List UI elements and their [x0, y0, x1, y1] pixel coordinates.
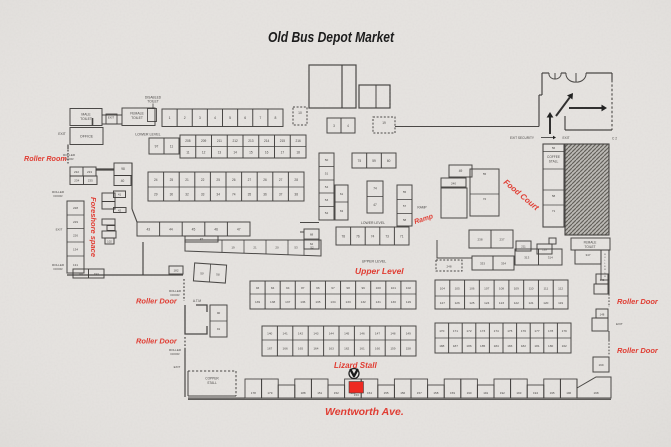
svg-text:59: 59 [200, 271, 204, 275]
svg-text:152: 152 [334, 391, 339, 395]
svg-text:5: 5 [229, 116, 231, 120]
svg-text:44: 44 [169, 227, 173, 231]
svg-text:138: 138 [270, 300, 275, 304]
svg-text:105: 105 [455, 286, 460, 290]
svg-text:162: 162 [562, 344, 567, 348]
svg-text:OFFICE: OFFICE [80, 135, 94, 139]
svg-text:178: 178 [251, 391, 256, 395]
svg-text:TOILET: TOILET [80, 117, 92, 121]
svg-text:171: 171 [453, 329, 458, 333]
svg-text:125: 125 [469, 301, 474, 305]
svg-text:123: 123 [499, 301, 504, 305]
svg-text:159: 159 [450, 391, 455, 395]
svg-text:131: 131 [376, 300, 381, 304]
svg-text:21: 21 [253, 246, 257, 250]
svg-text:STALL: STALL [207, 381, 217, 385]
svg-text:173: 173 [480, 329, 485, 333]
svg-text:154: 154 [367, 391, 372, 395]
svg-text:76: 76 [356, 234, 360, 238]
svg-text:4: 4 [214, 116, 216, 120]
svg-text:182: 182 [173, 269, 178, 273]
svg-text:22: 22 [201, 178, 205, 182]
svg-text:159: 159 [390, 346, 395, 350]
svg-text:47: 47 [237, 227, 241, 231]
svg-text:190: 190 [467, 391, 472, 395]
svg-text:87: 87 [301, 286, 305, 290]
svg-text:164: 164 [313, 346, 318, 350]
svg-text:52: 52 [325, 211, 329, 215]
svg-text:101: 101 [391, 286, 396, 290]
svg-text:135: 135 [315, 300, 320, 304]
svg-text:15: 15 [249, 151, 253, 155]
svg-text:216: 216 [295, 139, 301, 143]
svg-text:182: 182 [521, 344, 526, 348]
svg-text:74: 74 [232, 192, 236, 196]
svg-text:146: 146 [600, 278, 605, 282]
svg-text:198: 198 [593, 391, 598, 395]
svg-text:180: 180 [548, 344, 553, 348]
svg-text:149: 149 [406, 331, 411, 335]
svg-text:Upper Level: Upper Level [355, 266, 404, 276]
svg-text:188: 188 [439, 344, 444, 348]
svg-text:59: 59 [372, 159, 376, 163]
svg-text:13: 13 [218, 151, 222, 155]
svg-text:124: 124 [484, 301, 489, 305]
svg-text:8: 8 [274, 116, 276, 120]
svg-text:16: 16 [265, 151, 269, 155]
svg-text:73: 73 [385, 234, 389, 238]
svg-text:193: 193 [516, 391, 521, 395]
svg-text:LOWER LEVEL: LOWER LEVEL [361, 221, 385, 225]
svg-text:35: 35 [248, 192, 252, 196]
svg-text:213: 213 [248, 139, 254, 143]
svg-text:188: 188 [301, 391, 306, 395]
svg-text:74: 74 [373, 187, 377, 191]
svg-text:37: 37 [279, 192, 283, 196]
svg-text:30: 30 [170, 192, 174, 196]
svg-text:11: 11 [186, 151, 190, 155]
svg-text:110: 110 [529, 286, 534, 290]
svg-text:4: 4 [347, 124, 349, 128]
svg-text:25: 25 [216, 178, 220, 182]
svg-text:DOOR: DOOR [54, 194, 64, 198]
svg-text:42: 42 [118, 209, 122, 213]
svg-text:43: 43 [146, 227, 150, 231]
svg-text:38: 38 [294, 192, 298, 196]
svg-text:Roller Room: Roller Room [24, 154, 67, 163]
svg-text:Roller Door: Roller Door [136, 337, 178, 346]
svg-text:Roller Door: Roller Door [617, 297, 659, 306]
svg-text:192: 192 [500, 391, 505, 395]
svg-text:EXIT: EXIT [58, 132, 66, 136]
svg-text:12: 12 [202, 151, 206, 155]
svg-text:215: 215 [280, 139, 286, 143]
svg-text:46: 46 [214, 227, 218, 231]
svg-text:3: 3 [199, 116, 201, 120]
svg-text:TOILET: TOILET [147, 100, 158, 104]
svg-text:165: 165 [298, 346, 303, 350]
svg-text:160: 160 [375, 346, 380, 350]
svg-text:137: 137 [285, 300, 290, 304]
svg-text:EXIT: EXIT [56, 228, 63, 232]
svg-text:131: 131 [73, 263, 78, 267]
svg-text:158: 158 [406, 346, 411, 350]
svg-text:EXIT: EXIT [562, 136, 569, 140]
svg-text:209: 209 [201, 139, 207, 143]
svg-text:74: 74 [371, 234, 375, 238]
svg-text:226: 226 [73, 234, 78, 238]
svg-text:139: 139 [255, 300, 260, 304]
svg-text:COFFEE: COFFEE [547, 155, 560, 159]
svg-text:19: 19 [231, 246, 235, 250]
svg-text:176: 176 [521, 329, 526, 333]
svg-text:112: 112 [558, 286, 563, 290]
svg-text:20: 20 [275, 246, 279, 250]
svg-text:53: 53 [325, 198, 329, 202]
svg-text:313: 313 [524, 255, 529, 259]
svg-text:153: 153 [354, 393, 359, 397]
svg-text:109: 109 [514, 286, 519, 290]
svg-text:78: 78 [342, 234, 346, 238]
svg-text:Wentworth Ave.: Wentworth Ave. [325, 406, 404, 418]
svg-text:98: 98 [121, 167, 125, 171]
svg-text:228: 228 [73, 206, 78, 210]
svg-text:136: 136 [300, 300, 305, 304]
svg-text:175: 175 [507, 329, 512, 333]
svg-text:58: 58 [403, 218, 407, 222]
svg-text:195: 195 [550, 391, 555, 395]
svg-text:LOWER LEVEL: LOWER LEVEL [135, 133, 160, 137]
svg-text:151: 151 [317, 391, 322, 395]
svg-text:166: 166 [283, 346, 288, 350]
svg-text:178: 178 [548, 329, 553, 333]
svg-text:211: 211 [217, 139, 222, 143]
svg-text:61: 61 [340, 192, 344, 196]
svg-text:111: 111 [543, 286, 548, 290]
svg-text:185: 185 [480, 344, 485, 348]
svg-text:71: 71 [552, 209, 556, 213]
svg-text:29: 29 [154, 192, 158, 196]
svg-text:334: 334 [501, 261, 506, 265]
svg-text:27: 27 [248, 178, 252, 182]
svg-text:235: 235 [88, 179, 93, 183]
svg-text:134: 134 [330, 300, 335, 304]
svg-text:Old Bus Depot Market: Old Bus Depot Market [268, 30, 395, 46]
svg-text:Foreshore space: Foreshore space [89, 197, 98, 257]
svg-text:132: 132 [361, 300, 366, 304]
svg-text:36: 36 [263, 192, 267, 196]
svg-text:32: 32 [185, 192, 189, 196]
svg-text:EXIT: EXIT [616, 322, 623, 326]
svg-text:17: 17 [281, 151, 285, 155]
svg-text:51: 51 [325, 172, 329, 176]
svg-text:10: 10 [298, 111, 302, 115]
svg-text:47: 47 [373, 203, 377, 207]
svg-text:184: 184 [494, 344, 499, 348]
svg-text:314: 314 [548, 255, 553, 259]
svg-text:177: 177 [534, 329, 539, 333]
svg-text:97: 97 [331, 286, 335, 290]
svg-text:1: 1 [169, 116, 171, 120]
svg-text:211: 211 [521, 245, 526, 249]
svg-text:FEMALE: FEMALE [130, 112, 144, 116]
svg-text:57: 57 [403, 204, 407, 208]
svg-text:25: 25 [170, 178, 174, 182]
svg-text:62: 62 [310, 242, 314, 246]
svg-text:162: 162 [344, 346, 349, 350]
svg-text:144: 144 [329, 331, 334, 335]
svg-text:90: 90 [217, 311, 221, 315]
svg-text:27: 27 [279, 178, 283, 182]
svg-text:49: 49 [459, 169, 463, 173]
svg-text:53: 53 [294, 246, 298, 250]
svg-text:EXIT: EXIT [108, 116, 115, 120]
svg-text:24: 24 [154, 178, 158, 182]
svg-text:186: 186 [466, 344, 471, 348]
svg-text:98: 98 [346, 286, 350, 290]
svg-text:167: 167 [267, 346, 272, 350]
svg-text:TOILET: TOILET [584, 245, 595, 249]
svg-text:237: 237 [499, 237, 504, 241]
svg-text:EXIT SECURITY: EXIT SECURITY [510, 136, 535, 140]
svg-text:Lizard Stall: Lizard Stall [334, 361, 377, 370]
svg-text:A.T.M: A.T.M [193, 299, 201, 303]
svg-text:84: 84 [271, 286, 275, 290]
svg-text:33: 33 [201, 192, 205, 196]
svg-text:145: 145 [344, 331, 349, 335]
svg-text:148: 148 [390, 331, 395, 335]
svg-text:172: 172 [466, 329, 471, 333]
svg-text:179: 179 [267, 391, 272, 395]
svg-text:140: 140 [267, 331, 272, 335]
svg-text:133: 133 [346, 300, 351, 304]
svg-text:120: 120 [543, 301, 548, 305]
svg-text:147: 147 [375, 331, 380, 335]
svg-text:6: 6 [244, 116, 246, 120]
svg-text:40: 40 [121, 179, 125, 183]
svg-text:100: 100 [376, 286, 381, 290]
svg-text:19: 19 [382, 121, 386, 125]
svg-text:104: 104 [440, 286, 445, 290]
svg-text:121: 121 [528, 301, 533, 305]
svg-text:127: 127 [440, 301, 445, 305]
svg-text:55: 55 [403, 190, 407, 194]
svg-text:26: 26 [263, 178, 267, 182]
svg-text:157: 157 [417, 391, 422, 395]
svg-text:134: 134 [73, 248, 78, 252]
svg-text:232: 232 [74, 170, 79, 174]
svg-text:170: 170 [439, 329, 444, 333]
svg-text:54: 54 [325, 185, 329, 189]
svg-text:238: 238 [477, 237, 482, 241]
svg-text:126: 126 [455, 301, 460, 305]
svg-text:56: 56 [552, 146, 556, 150]
svg-text:194: 194 [533, 391, 538, 395]
svg-text:Roller Door: Roller Door [617, 346, 659, 355]
svg-text:187: 187 [453, 344, 458, 348]
svg-text:63: 63 [340, 209, 344, 213]
svg-text:DOOR: DOOR [54, 267, 64, 271]
svg-text:34: 34 [216, 192, 220, 196]
svg-text:108: 108 [499, 286, 504, 290]
svg-text:RAMP: RAMP [417, 206, 426, 210]
svg-text:240: 240 [451, 182, 456, 186]
svg-text:333: 333 [480, 261, 485, 265]
svg-text:41: 41 [118, 193, 122, 197]
svg-text:21: 21 [185, 178, 189, 182]
svg-text:142: 142 [298, 331, 303, 335]
svg-text:179: 179 [562, 329, 567, 333]
svg-text:26: 26 [232, 178, 236, 182]
svg-text:174: 174 [494, 329, 499, 333]
svg-text:COPPER: COPPER [205, 377, 219, 381]
svg-text:191: 191 [483, 391, 488, 395]
svg-text:91: 91 [217, 327, 221, 331]
svg-text:163: 163 [329, 346, 334, 350]
svg-text:55: 55 [483, 172, 487, 176]
svg-text:214: 214 [264, 139, 270, 143]
svg-text:3: 3 [333, 124, 335, 128]
svg-text:143: 143 [313, 331, 318, 335]
svg-text:130: 130 [391, 300, 396, 304]
svg-text:94: 94 [286, 286, 290, 290]
svg-text:18: 18 [296, 151, 300, 155]
svg-text:MALE: MALE [81, 113, 91, 117]
svg-text:122: 122 [514, 301, 519, 305]
svg-text:208: 208 [185, 139, 191, 143]
svg-text:148: 148 [600, 313, 605, 317]
svg-text:129: 129 [406, 300, 411, 304]
svg-text:139: 139 [542, 248, 547, 252]
svg-text:97: 97 [155, 144, 159, 148]
svg-text:347: 347 [585, 253, 590, 257]
svg-text:248: 248 [446, 265, 451, 269]
svg-text:75: 75 [358, 159, 362, 163]
svg-text:60: 60 [387, 159, 391, 163]
svg-text:229: 229 [73, 220, 78, 224]
svg-text:102: 102 [107, 240, 112, 244]
svg-text:183: 183 [507, 344, 512, 348]
svg-text:93: 93 [256, 286, 260, 290]
svg-text:2: 2 [184, 116, 186, 120]
svg-text:158: 158 [433, 391, 438, 395]
svg-text:72: 72 [483, 197, 487, 201]
svg-text:UPPER LEVEL: UPPER LEVEL [362, 260, 387, 264]
svg-text:199: 199 [598, 363, 603, 367]
svg-text:Roller Door: Roller Door [136, 297, 178, 306]
svg-text:181: 181 [534, 344, 539, 348]
svg-text:C 2: C 2 [612, 137, 617, 141]
svg-text:119: 119 [558, 301, 563, 305]
svg-text:DOOR: DOOR [171, 352, 181, 356]
svg-text:58: 58 [552, 194, 556, 198]
svg-text:155: 155 [384, 391, 389, 395]
svg-text:161: 161 [360, 346, 365, 350]
svg-text:28: 28 [294, 178, 298, 182]
svg-text:EXIT: EXIT [174, 365, 181, 369]
svg-text:14: 14 [233, 151, 237, 155]
svg-text:146: 146 [360, 331, 365, 335]
svg-text:50: 50 [325, 158, 329, 162]
svg-text:233: 233 [87, 170, 92, 174]
svg-text:STALL: STALL [549, 160, 559, 164]
svg-text:212: 212 [232, 139, 238, 143]
svg-text:102: 102 [406, 286, 411, 290]
svg-text:TOILET: TOILET [131, 116, 143, 120]
svg-text:141: 141 [283, 331, 288, 335]
svg-text:107: 107 [484, 286, 489, 290]
svg-text:71: 71 [400, 234, 404, 238]
svg-text:68: 68 [310, 233, 314, 237]
svg-text:96: 96 [316, 286, 320, 290]
svg-text:234: 234 [74, 179, 79, 183]
svg-text:156: 156 [400, 391, 405, 395]
svg-text:45: 45 [192, 227, 196, 231]
svg-text:58: 58 [216, 272, 220, 276]
svg-text:O: O [604, 257, 606, 259]
svg-text:99: 99 [361, 286, 365, 290]
svg-text:196: 196 [566, 391, 571, 395]
svg-text:106: 106 [469, 286, 474, 290]
svg-text:7: 7 [259, 116, 261, 120]
svg-text:11: 11 [170, 144, 174, 148]
